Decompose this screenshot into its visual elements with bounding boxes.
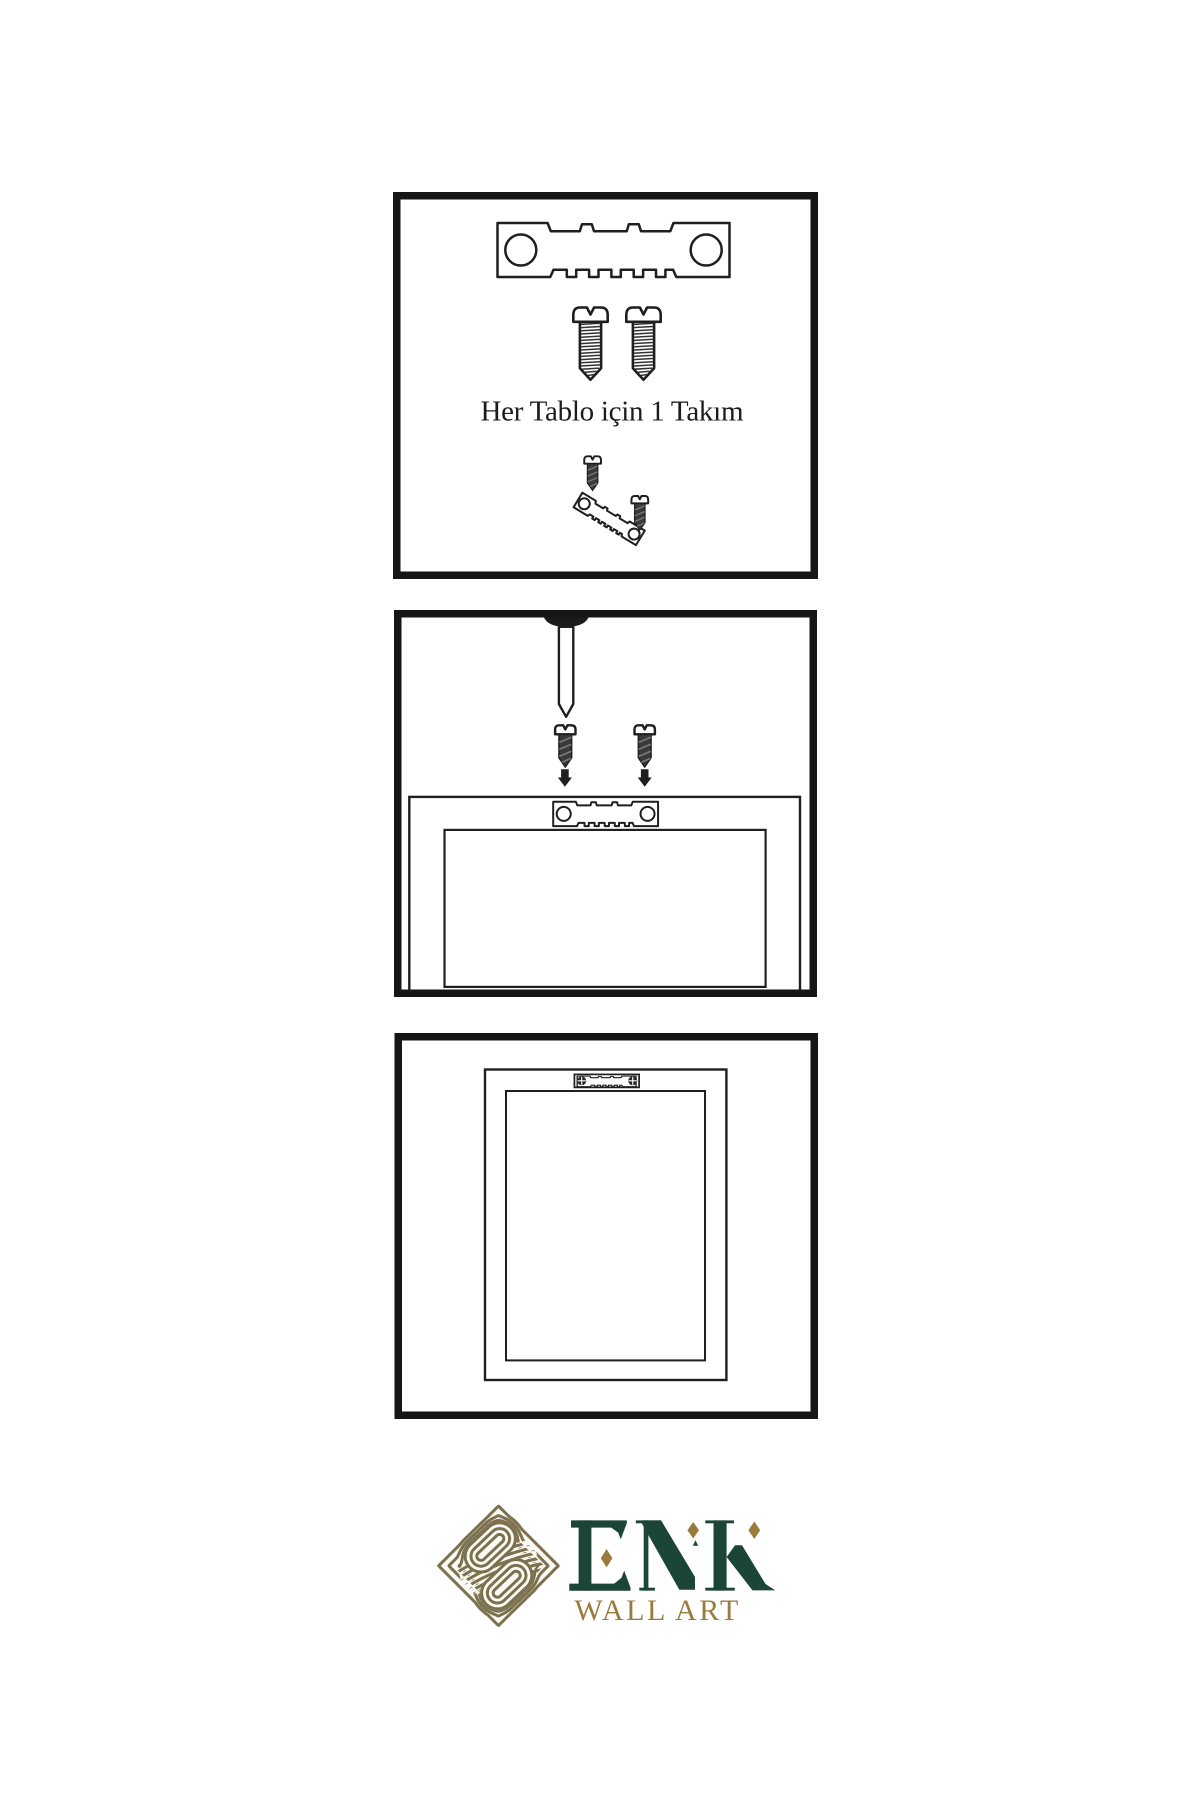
svg-text:WALL ART: WALL ART: [574, 1594, 738, 1627]
svg-text:Her Tablo için 1 Takım: Her Tablo için 1 Takım: [481, 396, 744, 428]
